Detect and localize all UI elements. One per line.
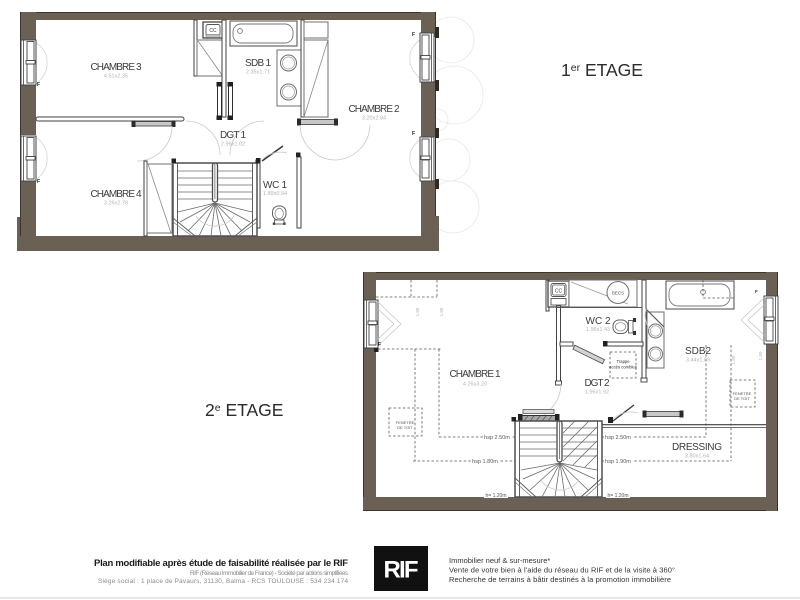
svg-text:hsp 2.50m: hsp 2.50m <box>605 435 631 441</box>
svg-text:h= 1.20m: h= 1.20m <box>608 493 629 499</box>
svg-text:h= 1.20m: h= 1.20m <box>486 493 507 499</box>
svg-text:4.26x3.20: 4.26x3.20 <box>463 382 487 388</box>
svg-text:F: F <box>37 82 40 88</box>
svg-text:DGT 1: DGT 1 <box>220 130 246 141</box>
svg-text:hsp 2.50m: hsp 2.50m <box>484 435 510 441</box>
svg-text:1.80: 1.80 <box>731 355 736 364</box>
svg-text:3.80x1.64: 3.80x1.64 <box>685 454 709 460</box>
svg-text:CHAMBRE 4: CHAMBRE 4 <box>91 189 142 200</box>
svg-text:F: F <box>412 32 415 38</box>
svg-text:1.80: 1.80 <box>415 307 420 316</box>
svg-text:CHAMBRE 3: CHAMBRE 3 <box>91 62 142 73</box>
svg-text:Vente de votre bien à l'aide d: Vente de votre bien à l'aide du réseau d… <box>449 566 675 575</box>
svg-text:F: F <box>412 131 415 137</box>
svg-text:Plan modifiable après étude de: Plan modifiable après étude de faisabili… <box>94 558 348 569</box>
svg-text:Siège social : 1 place de Pav: Siège social : 1 place de Pavaurs, 31130… <box>98 578 348 585</box>
svg-text:2.35x1.71: 2.35x1.71 <box>246 70 270 76</box>
svg-text:SDB2: SDB2 <box>685 346 711 357</box>
svg-text:F: F <box>378 342 381 348</box>
svg-text:DGT 2: DGT 2 <box>585 378 610 389</box>
svg-text:CC: CC <box>555 289 563 295</box>
svg-text:4.51x2.35: 4.51x2.35 <box>104 74 128 80</box>
svg-text:1.89x0.94: 1.89x0.94 <box>263 191 287 197</box>
svg-text:1.96x1.43: 1.96x1.43 <box>586 327 610 333</box>
svg-text:hsp 1.90m: hsp 1.90m <box>605 459 631 465</box>
svg-text:BECS: BECS <box>612 291 624 296</box>
svg-text:2.96x1.02: 2.96x1.02 <box>221 142 245 148</box>
svg-text:Recherche de terrains à bâtir: Recherche de terrains à bâtir destinés à… <box>449 575 671 584</box>
svg-text:1.96x1.92: 1.96x1.92 <box>585 390 609 396</box>
svg-text:hsp 1.80m: hsp 1.80m <box>472 459 498 465</box>
svg-text:WC 2: WC 2 <box>586 316 611 327</box>
svg-text:Immobilier neuf & sur-mesure*: Immobilier neuf & sur-mesure* <box>449 556 550 565</box>
svg-text:DRESSING: DRESSING <box>672 442 722 453</box>
svg-text:CHAMBRE 2: CHAMBRE 2 <box>349 104 400 115</box>
svg-text:RIF: RIF <box>384 557 419 584</box>
svg-text:SDB 1: SDB 1 <box>245 58 271 69</box>
svg-text:WC 1: WC 1 <box>263 180 287 191</box>
svg-text:RIF (Réseau Immobilier de Fran: RIF (Réseau Immobilier de France) - Soci… <box>190 570 348 577</box>
svg-text:3.20x2.84: 3.20x2.84 <box>362 116 386 122</box>
svg-text:1.80: 1.80 <box>439 307 444 316</box>
svg-text:Trappe: Trappe <box>616 359 630 364</box>
svg-text:accès combles: accès combles <box>609 365 637 370</box>
svg-text:F: F <box>755 289 758 294</box>
svg-text:DE TOIT: DE TOIT <box>397 425 413 430</box>
svg-text:3.44x1.89: 3.44x1.89 <box>686 358 710 364</box>
svg-text:F: F <box>37 179 40 185</box>
svg-text:CHAMBRE 1: CHAMBRE 1 <box>450 369 501 380</box>
svg-text:3.26x2.78: 3.26x2.78 <box>104 201 128 207</box>
svg-text:CC: CC <box>209 28 217 34</box>
svg-text:DE TOIT: DE TOIT <box>734 396 750 401</box>
svg-text:1.80: 1.80 <box>758 351 763 360</box>
